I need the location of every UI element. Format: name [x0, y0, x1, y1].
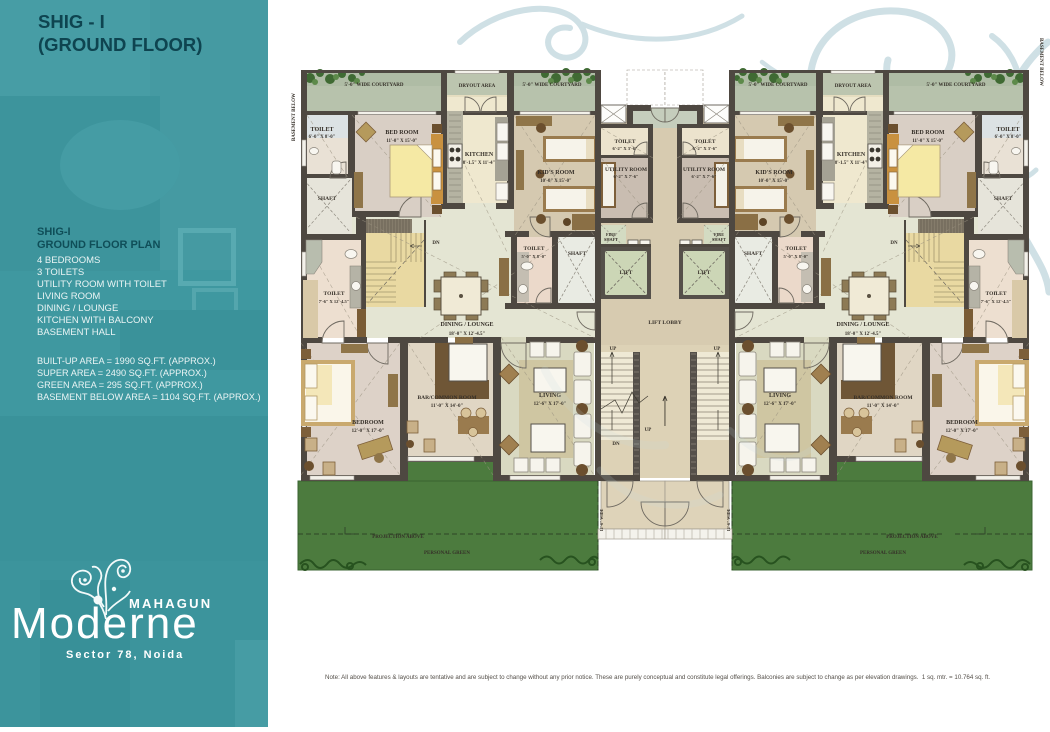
svg-text:UTILITY ROOM: UTILITY ROOM	[683, 167, 726, 173]
svg-text:PERSONAL GREEN: PERSONAL GREEN	[424, 551, 470, 556]
svg-text:12'-0" X 17'-0": 12'-0" X 17'-0"	[946, 429, 979, 434]
svg-text:UP: UP	[645, 428, 652, 433]
svg-text:11'-0" X 15'-0": 11'-0" X 15'-0"	[912, 139, 944, 144]
svg-text:BED ROOM: BED ROOM	[911, 130, 945, 136]
svg-text:TOILET: TOILET	[986, 291, 1007, 297]
svg-text:TOILET: TOILET	[695, 139, 716, 145]
svg-text:12'-6" X 17'-0": 12'-6" X 17'-0"	[534, 402, 567, 407]
svg-text:12'-6" WIDE: 12'-6" WIDE	[599, 508, 604, 531]
svg-text:TOILET: TOILET	[615, 139, 636, 145]
svg-text:KID'S ROOM: KID'S ROOM	[755, 170, 793, 176]
svg-text:DN: DN	[890, 241, 898, 246]
svg-text:18'-0" X 12'-4.5": 18'-0" X 12'-4.5"	[845, 332, 882, 337]
svg-text:8'-1.5" X 11'-4": 8'-1.5" X 11'-4"	[463, 161, 496, 166]
svg-text:TOILET: TOILET	[524, 246, 545, 252]
svg-text:TOILET: TOILET	[997, 127, 1020, 133]
svg-text:10'-0" X 15'-0": 10'-0" X 15'-0"	[758, 179, 790, 184]
svg-text:DN: DN	[432, 241, 440, 246]
svg-text:6'-2" X 7'-6": 6'-2" X 7'-6"	[614, 174, 639, 179]
svg-text:11'-0" X 15'-0": 11'-0" X 15'-0"	[386, 139, 418, 144]
svg-text:LIVING: LIVING	[769, 393, 791, 399]
svg-text:LIFT: LIFT	[620, 270, 633, 276]
svg-text:11'-0" X 14'-0": 11'-0" X 14'-0"	[867, 404, 900, 409]
svg-text:BASEMENT BELOW: BASEMENT BELOW	[292, 93, 297, 141]
svg-text:LIFT LOBBY: LIFT LOBBY	[648, 320, 681, 326]
svg-text:SHAFT: SHAFT	[568, 251, 587, 257]
svg-text:TOILET: TOILET	[324, 291, 345, 297]
svg-text:BEDROOM: BEDROOM	[946, 420, 978, 426]
svg-text:TOILET: TOILET	[786, 246, 807, 252]
svg-text:6'-2" X 3'-6": 6'-2" X 3'-6"	[613, 146, 638, 151]
svg-text:12'-6" WIDE: 12'-6" WIDE	[726, 508, 731, 531]
svg-text:6'-2" X 3'-6": 6'-2" X 3'-6"	[693, 146, 718, 151]
svg-text:8'-1.5" X 11'-4": 8'-1.5" X 11'-4"	[835, 161, 868, 166]
svg-text:BEDROOM: BEDROOM	[352, 420, 384, 426]
svg-text:DINING / LOUNGE: DINING / LOUNGE	[836, 322, 889, 328]
svg-text:DRYOUT AREA: DRYOUT AREA	[835, 84, 872, 89]
svg-text:5'-0" X 8'-0": 5'-0" X 8'-0"	[522, 254, 547, 259]
svg-text:SHAFT: SHAFT	[712, 237, 726, 242]
svg-text:5'-0" X 8'-0": 5'-0" X 8'-0"	[784, 254, 809, 259]
svg-text:18'-0" X 12'-4.5": 18'-0" X 12'-4.5"	[449, 332, 486, 337]
svg-text:6'-0" X 8'-0": 6'-0" X 8'-0"	[995, 135, 1022, 140]
svg-text:PROJECTION ABOVE: PROJECTION ABOVE	[372, 535, 424, 540]
svg-text:PERSONAL GREEN: PERSONAL GREEN	[860, 551, 906, 556]
svg-text:KID'S ROOM: KID'S ROOM	[537, 170, 575, 176]
svg-text:6'-0" X 8'-0": 6'-0" X 8'-0"	[309, 135, 336, 140]
svg-text:TOILET: TOILET	[311, 127, 334, 133]
svg-text:BASEMENT BELOW: BASEMENT BELOW	[1038, 38, 1043, 86]
svg-text:DINING / LOUNGE: DINING / LOUNGE	[440, 322, 493, 328]
svg-text:LIFT: LIFT	[698, 270, 711, 276]
svg-text:5'-0" WIDE COURTYARD: 5'-0" WIDE COURTYARD	[523, 83, 582, 88]
svg-text:6'-2" X 7'-6": 6'-2" X 7'-6"	[692, 174, 717, 179]
svg-text:BAR/COMMON ROOM: BAR/COMMON ROOM	[417, 395, 477, 401]
svg-text:SHAFT: SHAFT	[994, 196, 1013, 202]
svg-text:PROJECTION ABOVE: PROJECTION ABOVE	[886, 535, 938, 540]
svg-text:SHAFT: SHAFT	[318, 196, 337, 202]
svg-text:KITCHEN: KITCHEN	[837, 152, 866, 158]
svg-text:BAR/COMMON ROOM: BAR/COMMON ROOM	[853, 395, 913, 401]
svg-text:BED ROOM: BED ROOM	[385, 130, 419, 136]
svg-text:12'-6" X 17'-0": 12'-6" X 17'-0"	[764, 402, 797, 407]
svg-text:5'-0" WIDE COURTYARD: 5'-0" WIDE COURTYARD	[927, 83, 986, 88]
svg-text:7'-6" X 12'-4.5": 7'-6" X 12'-4.5"	[319, 299, 350, 304]
svg-text:KITCHEN: KITCHEN	[465, 152, 494, 158]
svg-text:11'-0" X 14'-0": 11'-0" X 14'-0"	[431, 404, 464, 409]
svg-text:7'-6" X 12'-4.5": 7'-6" X 12'-4.5"	[981, 299, 1012, 304]
svg-text:DRYOUT AREA: DRYOUT AREA	[459, 84, 496, 89]
svg-text:UTILITY ROOM: UTILITY ROOM	[605, 167, 648, 173]
svg-text:12'-0" X 17'-0": 12'-0" X 17'-0"	[352, 429, 385, 434]
svg-text:5'-0" WIDE COURTYARD: 5'-0" WIDE COURTYARD	[749, 83, 808, 88]
svg-text:5'-0" WIDE COURTYARD: 5'-0" WIDE COURTYARD	[345, 83, 404, 88]
svg-text:SHAFT: SHAFT	[604, 237, 618, 242]
svg-text:10'-0" X 15'-0": 10'-0" X 15'-0"	[540, 179, 572, 184]
svg-text:UP: UP	[610, 347, 617, 352]
svg-text:SHAFT: SHAFT	[744, 251, 763, 257]
svg-text:UP: UP	[714, 347, 721, 352]
